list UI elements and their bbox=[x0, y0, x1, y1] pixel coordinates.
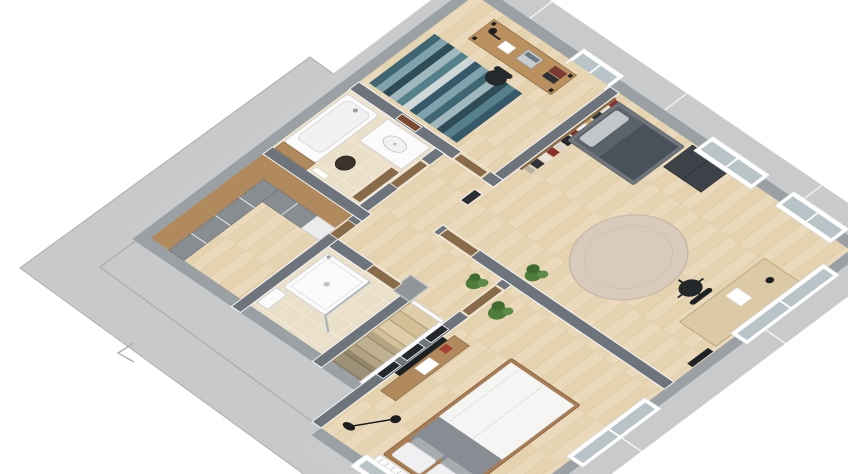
floorplan-stage bbox=[0, 0, 848, 474]
upper-floor bbox=[46, 0, 848, 474]
floorplan-render bbox=[0, 0, 848, 474]
